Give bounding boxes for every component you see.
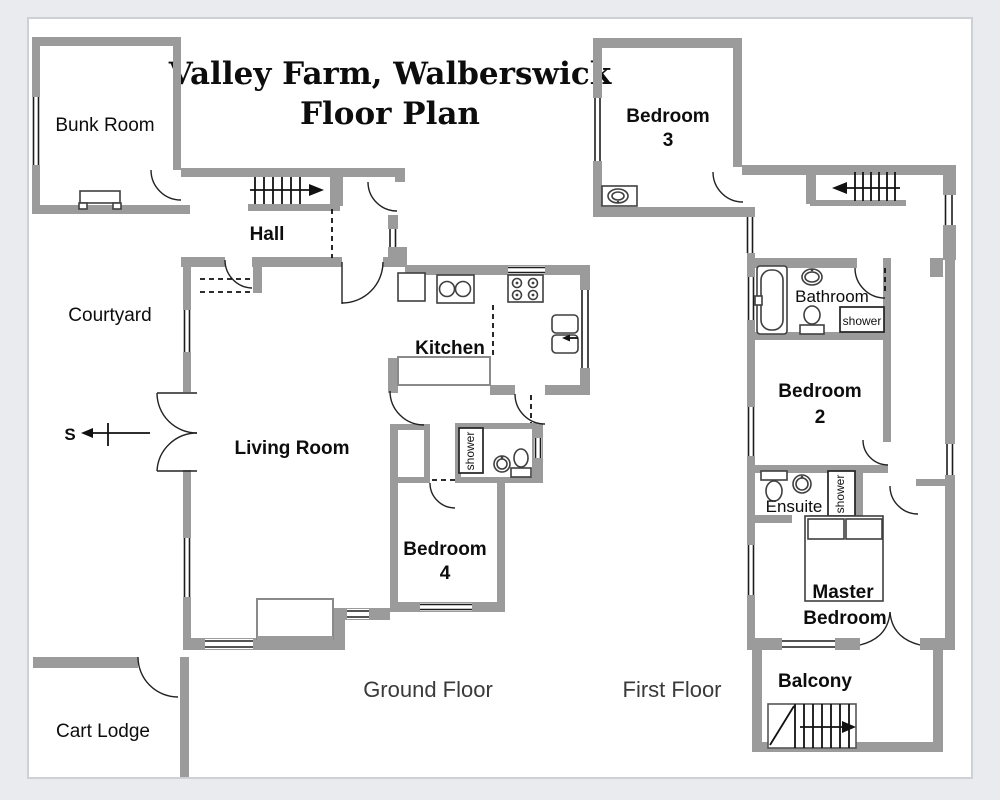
label-cart-lodge: Cart Lodge xyxy=(56,721,150,742)
floor-plan: Valley Farm, Walberswick Floor Plan xyxy=(0,0,1000,800)
label-hall: Hall xyxy=(250,224,285,245)
label-ensuite-shower: shower xyxy=(833,475,847,514)
label-bunk-room: Bunk Room xyxy=(55,115,154,136)
label-ensuite: Ensuite xyxy=(766,497,823,516)
sink-double-icon xyxy=(437,275,474,303)
label-bedroom2-line2: 2 xyxy=(815,407,826,428)
window xyxy=(943,195,956,225)
plan-title-line1: Valley Farm, Walberswick xyxy=(168,56,613,92)
window xyxy=(420,603,472,611)
basin-icon xyxy=(494,456,510,472)
window xyxy=(183,538,191,597)
window xyxy=(183,310,191,352)
window xyxy=(534,438,542,458)
label-first-floor: First Floor xyxy=(623,677,722,702)
label-living-room: Living Room xyxy=(234,438,349,459)
label-bedroom2-line1: Bedroom xyxy=(778,381,861,402)
stove-icon xyxy=(508,275,543,302)
label-ground-floor: Ground Floor xyxy=(363,677,493,702)
window xyxy=(347,609,369,619)
label-bathroom-shower: shower xyxy=(843,314,882,328)
window xyxy=(205,639,253,649)
label-master-line2: Bedroom xyxy=(803,608,886,629)
kitchen-counter xyxy=(398,357,490,385)
window xyxy=(747,407,755,456)
window xyxy=(747,277,755,320)
window xyxy=(593,98,602,161)
bathtub-icon xyxy=(755,266,787,334)
label-bedroom4-line2: 4 xyxy=(440,563,451,584)
window xyxy=(945,444,955,475)
plan-title-line2: Floor Plan xyxy=(300,96,480,132)
window xyxy=(388,229,398,247)
window xyxy=(508,266,545,274)
label-bedroom3-line1: Bedroom xyxy=(626,106,709,127)
basin-icon xyxy=(802,269,822,285)
window xyxy=(580,290,590,368)
label-ground-shower: shower xyxy=(463,432,477,471)
label-master-line1: Master xyxy=(812,582,874,603)
label-bedroom4-line1: Bedroom xyxy=(403,539,486,560)
compass-south-label: S xyxy=(64,425,75,444)
label-bathroom: Bathroom xyxy=(795,287,869,306)
label-balcony: Balcony xyxy=(778,671,852,692)
window xyxy=(32,97,40,165)
basin-icon xyxy=(602,186,637,206)
window xyxy=(747,545,755,595)
bay-recess xyxy=(257,599,333,639)
window xyxy=(782,639,835,649)
kitchen-unit xyxy=(398,273,425,301)
basin-icon xyxy=(793,475,811,493)
window xyxy=(745,217,755,253)
label-bedroom3-line2: 3 xyxy=(663,130,674,151)
label-courtyard: Courtyard xyxy=(68,305,151,326)
balcony-staircase xyxy=(768,704,856,748)
label-kitchen: Kitchen xyxy=(415,338,485,359)
